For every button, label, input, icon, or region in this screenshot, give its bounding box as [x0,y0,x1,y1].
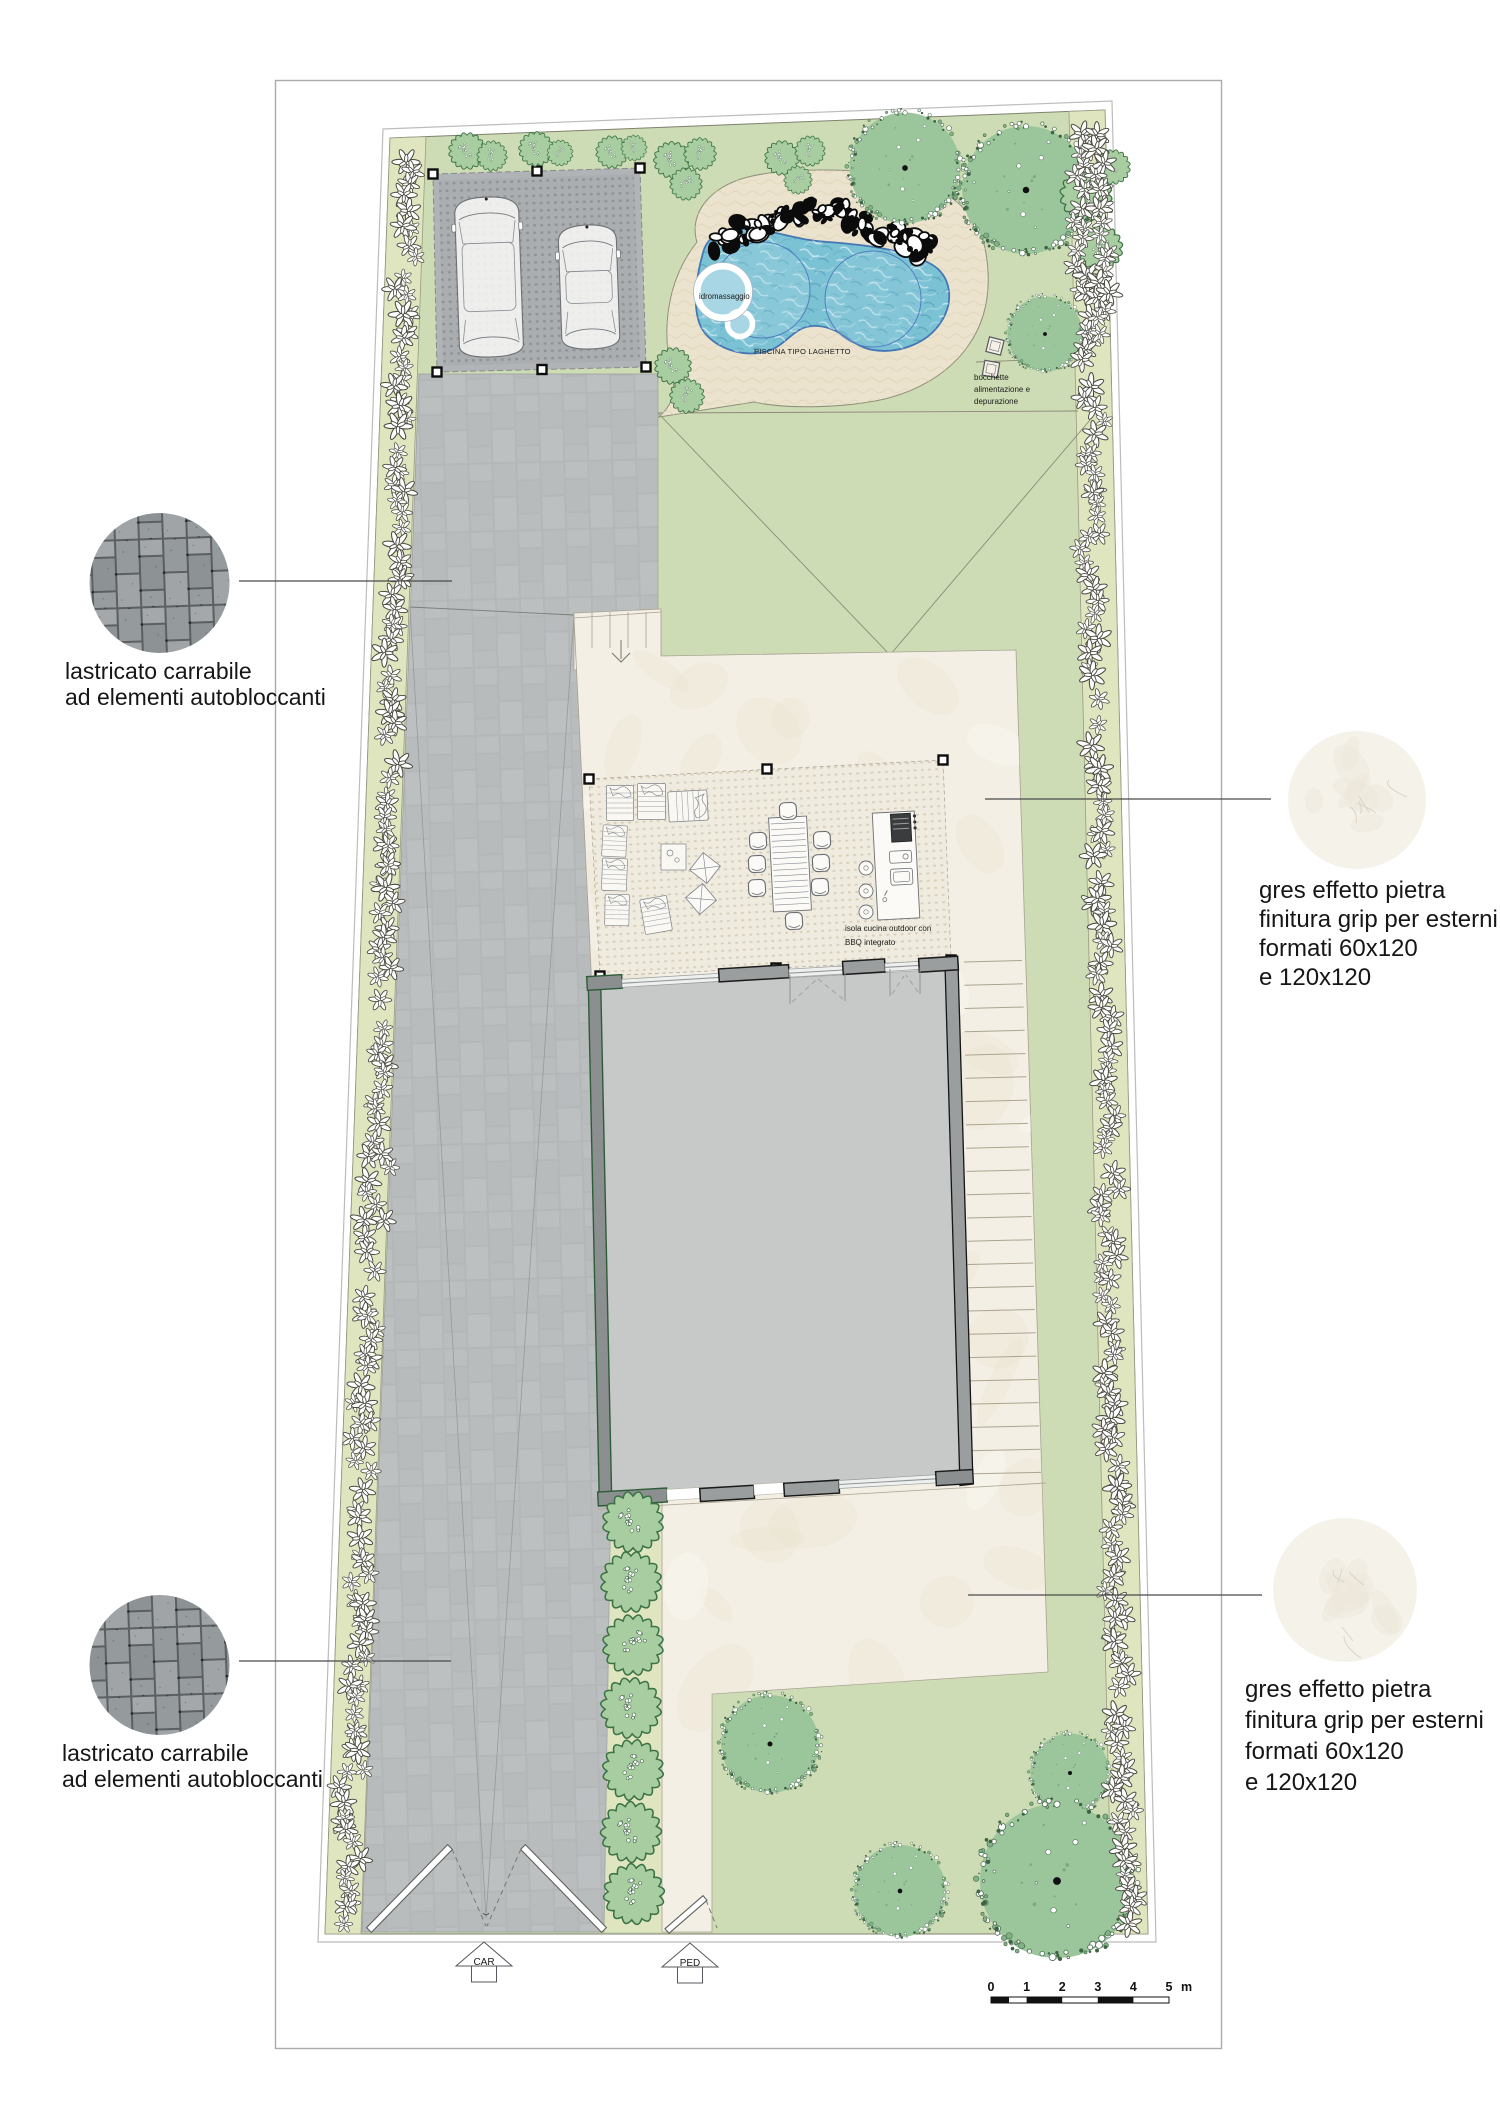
svg-text:e 120x120: e 120x120 [1259,964,1371,991]
svg-text:bocchette: bocchette [974,373,1009,382]
svg-text:0: 0 [988,1980,995,1994]
svg-text:isola cucina outdoor con: isola cucina outdoor con [845,924,931,933]
svg-text:idromassaggio: idromassaggio [699,292,750,301]
svg-text:depurazione: depurazione [974,397,1019,406]
svg-text:gres effetto pietra: gres effetto pietra [1245,1676,1432,1703]
svg-text:PED: PED [680,1958,701,1969]
svg-text:ad elementi autobloccanti: ad elementi autobloccanti [65,684,326,710]
svg-text:m: m [1181,1980,1192,1994]
svg-text:PISCINA TIPO LAGHETTO: PISCINA TIPO LAGHETTO [754,347,851,356]
svg-text:e 120x120: e 120x120 [1245,1769,1357,1796]
svg-text:formati 60x120: formati 60x120 [1245,1738,1404,1765]
svg-text:3: 3 [1094,1980,1101,1994]
svg-text:alimentazione e: alimentazione e [974,385,1031,394]
svg-text:lastricato carrabile: lastricato carrabile [65,658,252,684]
svg-text:BBQ integrato: BBQ integrato [845,938,896,947]
svg-text:formati 60x120: formati 60x120 [1259,935,1418,962]
svg-text:ad elementi autobloccanti: ad elementi autobloccanti [62,1766,323,1792]
svg-text:gres effetto pietra: gres effetto pietra [1259,877,1446,904]
svg-text:2: 2 [1059,1980,1066,1994]
svg-text:1: 1 [1023,1980,1030,1994]
svg-text:4: 4 [1130,1980,1137,1994]
svg-text:5: 5 [1166,1980,1173,1994]
svg-text:lastricato carrabile: lastricato carrabile [62,1740,249,1766]
svg-text:finitura grip per esterni: finitura grip per esterni [1245,1707,1484,1734]
svg-text:CAR: CAR [473,1957,494,1968]
svg-text:finitura grip per esterni: finitura grip per esterni [1259,906,1498,933]
